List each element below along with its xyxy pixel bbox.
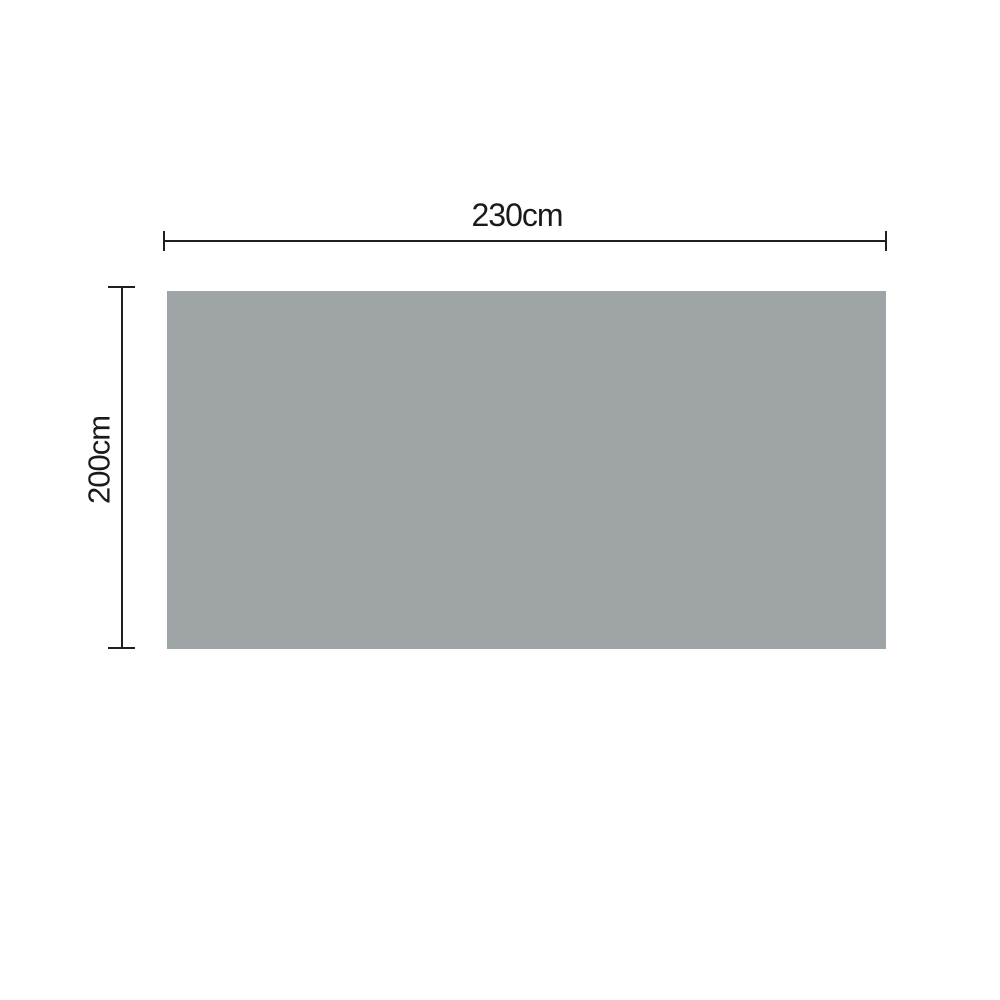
height-dimension-label: 200cm <box>84 416 115 504</box>
width-dimension-label: 230cm <box>457 199 577 231</box>
height-dimension-top-cap <box>108 286 135 288</box>
product-rectangle <box>167 291 886 649</box>
width-dimension-line <box>163 240 887 242</box>
width-dimension-right-cap <box>885 231 887 251</box>
height-dimension-line <box>121 287 123 648</box>
height-dimension-bottom-cap <box>108 647 135 649</box>
width-dimension-left-cap <box>163 231 165 251</box>
dimension-diagram: 230cm 200cm <box>0 0 1000 1000</box>
